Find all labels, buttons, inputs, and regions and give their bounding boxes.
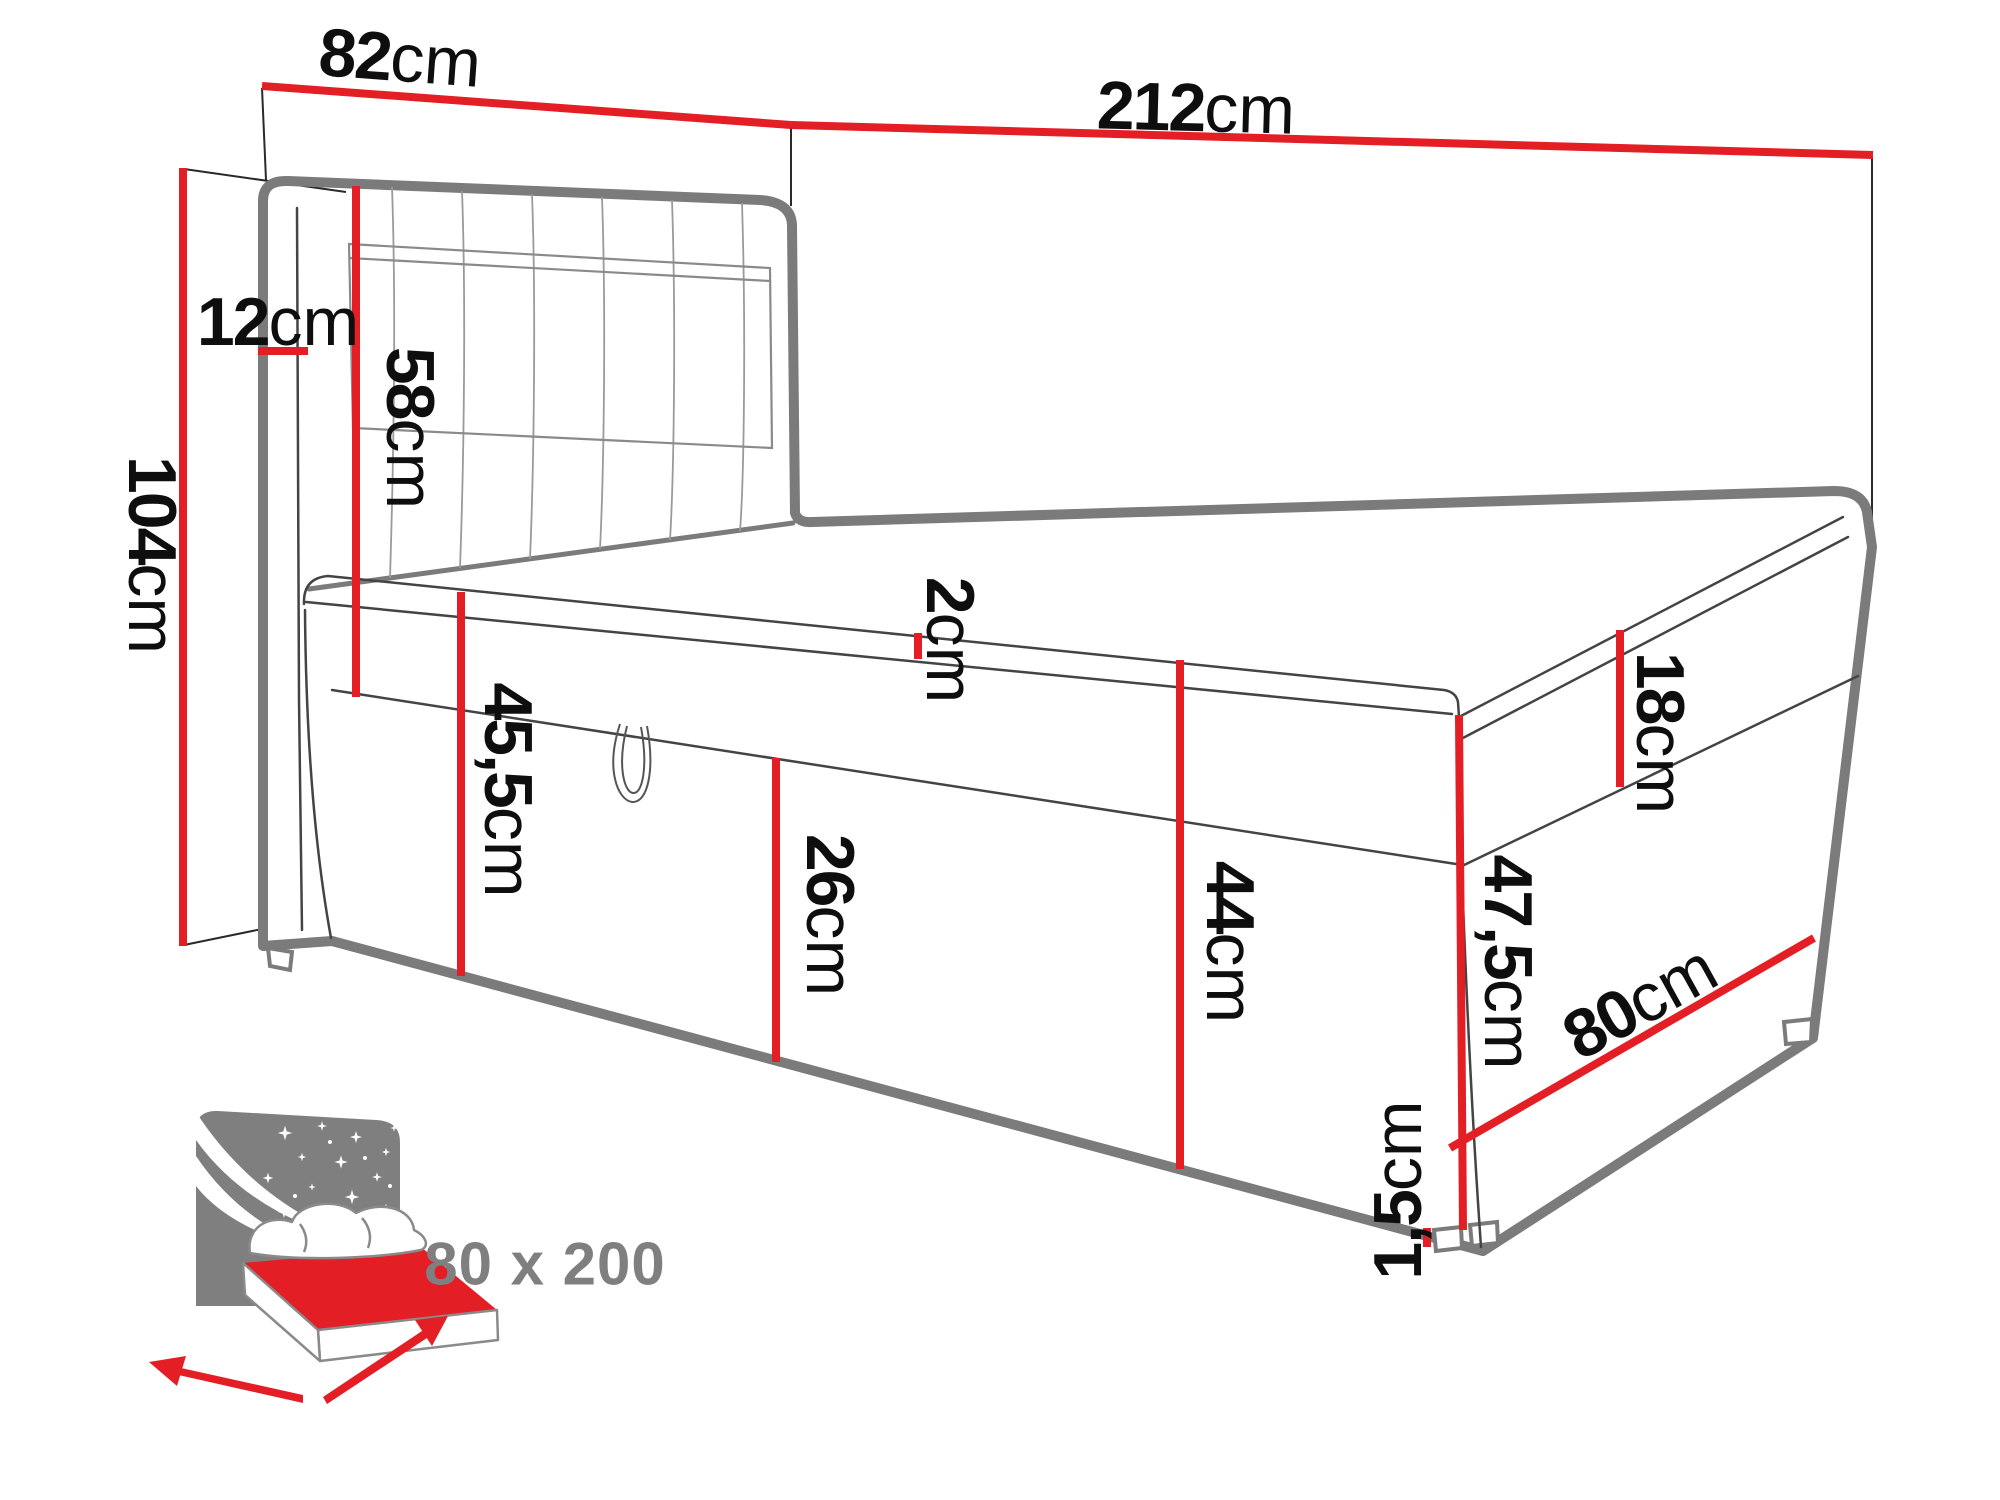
front-leg — [1470, 1222, 1498, 1246]
dim-legs-height-label: 1,5cm — [1364, 1100, 1432, 1279]
right-leg — [1784, 1019, 1812, 1044]
dim-total-height-label: 104cm — [118, 456, 186, 654]
icon-arrow-head-left — [149, 1356, 186, 1386]
bed-dimension-diagram: 82cm 212cm 104cm 12cm 58cm 2cm 45,5cm 26… — [0, 0, 2000, 1500]
dim-headboard-depth-label: 12cm — [197, 288, 359, 356]
dim-line-212cm — [791, 125, 1873, 155]
dim-line-47-5cm — [1459, 715, 1463, 1230]
front-leg — [1434, 1227, 1462, 1251]
dim-side-height-label: 45,5cm — [474, 682, 542, 897]
mattress-left-edge — [305, 610, 331, 938]
size-label: 80 x 200 — [424, 1230, 666, 1299]
dim-mattress-height-label: 18cm — [1626, 652, 1694, 814]
dim-drawer-height-label: 26cm — [796, 834, 864, 996]
dim-headboard-height-label: 58cm — [376, 347, 444, 509]
dim-topper-height-label: 2cm — [916, 577, 984, 703]
dim-total-length-label: 212cm — [1096, 71, 1296, 145]
dim-headboard-width-label: 82cm — [317, 18, 484, 98]
headboard-leg — [268, 948, 292, 970]
size-icon — [0, 0, 498, 1404]
red-dimension-lines — [183, 86, 1873, 1247]
headboard-mattress-junction — [309, 523, 793, 589]
bed-line-drawing — [0, 0, 2000, 1500]
dim-foot-height-label: 47,5cm — [1474, 854, 1542, 1069]
dim-base-height-label: 44cm — [1196, 861, 1264, 1023]
